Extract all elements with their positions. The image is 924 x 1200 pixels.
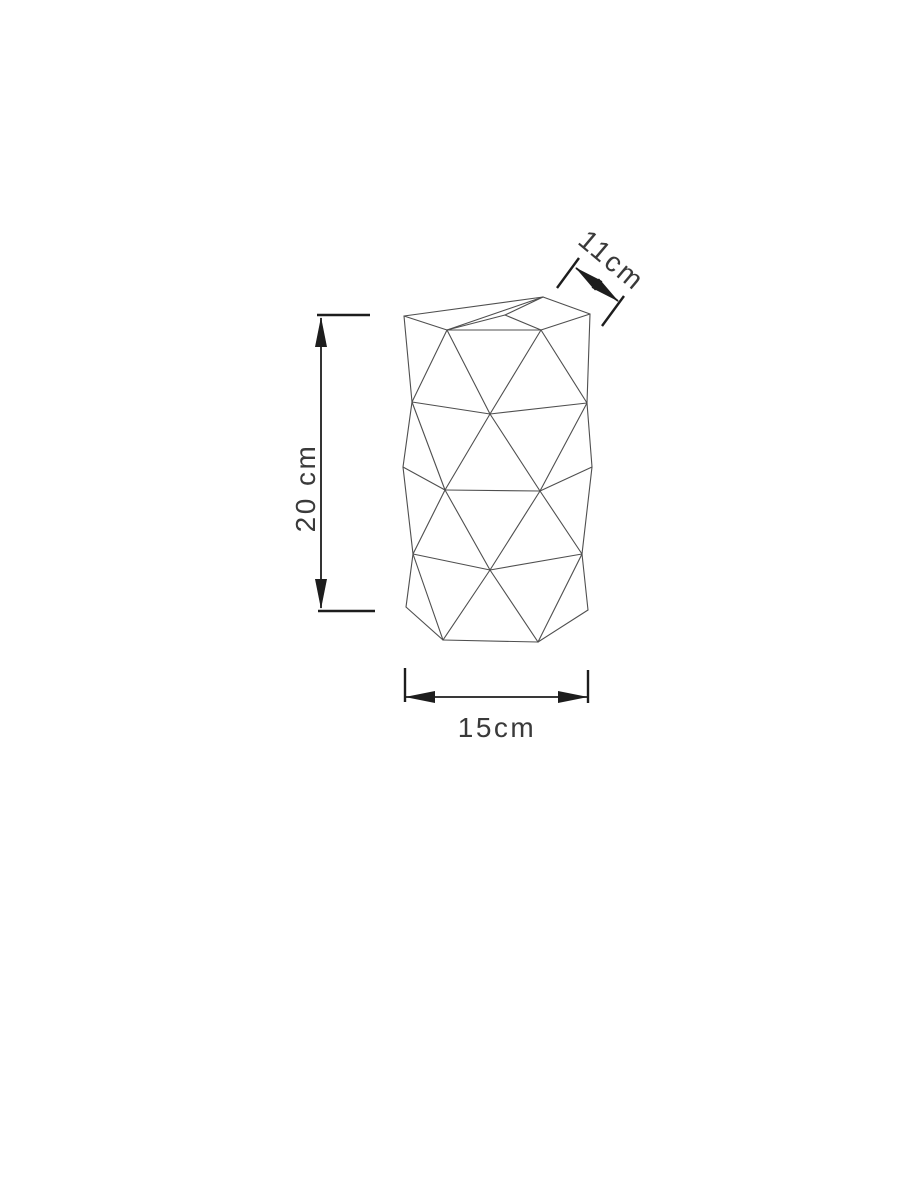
facet-edge — [445, 490, 490, 570]
facet-edge — [540, 491, 582, 554]
facet-edge — [403, 467, 413, 554]
facet-edge — [543, 297, 590, 314]
facet-edge — [587, 403, 592, 467]
facet-edge — [505, 315, 541, 330]
faceted-cylinder-drawing — [403, 297, 592, 642]
height-dimension-label: 20 cm — [290, 444, 321, 533]
facet-edge — [447, 330, 490, 414]
facet-edge — [490, 491, 540, 570]
dimension-labels: 20 cm 15cm 11cm — [290, 224, 651, 743]
technical-drawing-canvas: 20 cm 15cm 11cm — [0, 0, 924, 1200]
facet-edge — [403, 467, 445, 490]
facet-edge — [404, 316, 447, 330]
dimension-annotations — [317, 258, 624, 703]
facet-edge — [587, 314, 590, 403]
facet-edge — [413, 490, 445, 554]
facet-edge — [490, 414, 540, 491]
facet-edge — [540, 467, 592, 491]
depth-extension-line — [602, 296, 624, 326]
width-dimension-label: 15cm — [458, 712, 536, 743]
facet-edge — [538, 554, 582, 642]
facet-edge — [447, 315, 505, 330]
facet-edge — [541, 330, 587, 403]
depth-dimension-label: 11cm — [573, 224, 651, 297]
facet-edge — [582, 554, 588, 610]
facet-edge — [445, 490, 540, 491]
facet-edge — [445, 414, 490, 490]
depth-extension-line — [557, 258, 579, 288]
facet-edge — [490, 330, 541, 414]
facet-edge — [403, 402, 412, 467]
drawing-page: 20 cm 15cm 11cm — [0, 0, 924, 1200]
facet-edge — [412, 402, 490, 414]
facet-edge — [443, 640, 538, 642]
facet-edge — [582, 467, 592, 554]
facet-edge — [443, 570, 490, 640]
facet-edge — [540, 403, 587, 491]
facet-edge — [490, 570, 538, 642]
facet-edge — [404, 316, 412, 402]
facet-edge — [490, 403, 587, 414]
facet-edge — [412, 330, 447, 402]
facet-edge — [490, 554, 582, 570]
facet-edge — [406, 554, 413, 607]
facet-edge — [412, 402, 445, 490]
facet-edge — [413, 554, 490, 570]
facet-edge — [541, 314, 590, 330]
